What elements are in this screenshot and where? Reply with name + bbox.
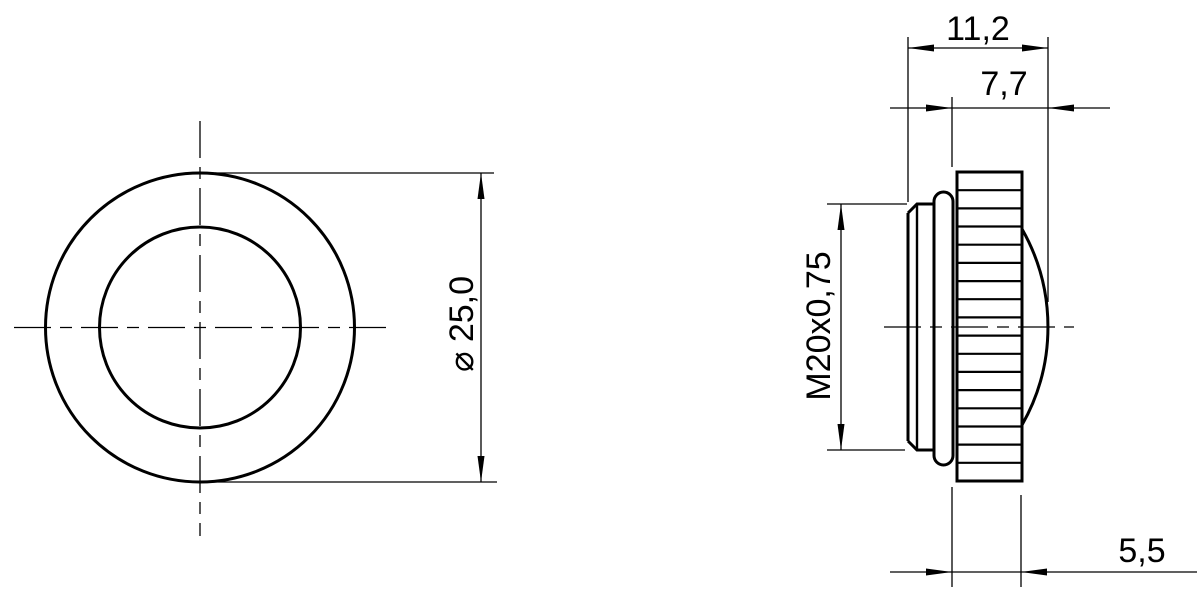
thread-arrowhead-up-icon — [838, 204, 845, 230]
side-view: 11,2 7,7 M20x0,75 — [800, 10, 1197, 587]
technical-drawing-page: ⌀ 25,0 — [0, 0, 1200, 599]
gasket-ring — [934, 192, 953, 465]
overall-depth-arrowhead-left-icon — [908, 45, 934, 52]
overall-depth-arrowhead-right-icon — [1022, 45, 1048, 52]
diameter-arrowhead-down-icon — [478, 456, 485, 482]
thread-arrowhead-down-icon — [838, 424, 845, 450]
front-depth-arrowhead-left-icon — [926, 105, 952, 112]
front-depth-arrowhead-right-icon — [1048, 105, 1074, 112]
thread-dim-label: M20x0,75 — [800, 251, 838, 400]
dimension-overall-depth: 11,2 — [908, 10, 1048, 302]
overall-depth-dim-label: 11,2 — [946, 10, 1010, 48]
knurl-width-dim-label: 5,5 — [1118, 532, 1165, 570]
dimension-front-depth: 7,7 — [890, 65, 1110, 167]
front-view: ⌀ 25,0 — [14, 121, 497, 536]
knurl-width-arrowhead-right-icon — [1021, 569, 1047, 576]
thread-top-edge — [908, 204, 934, 213]
diameter-dim-label: ⌀ 25,0 — [443, 276, 481, 372]
thread-bottom-edge — [908, 441, 934, 450]
diameter-arrowhead-up-icon — [478, 173, 485, 199]
dimension-knurl-width: 5,5 — [890, 487, 1197, 587]
front-depth-dim-label: 7,7 — [980, 65, 1027, 103]
knurl-width-arrowhead-left-icon — [926, 569, 952, 576]
technical-drawing-canvas: ⌀ 25,0 — [0, 0, 1200, 599]
